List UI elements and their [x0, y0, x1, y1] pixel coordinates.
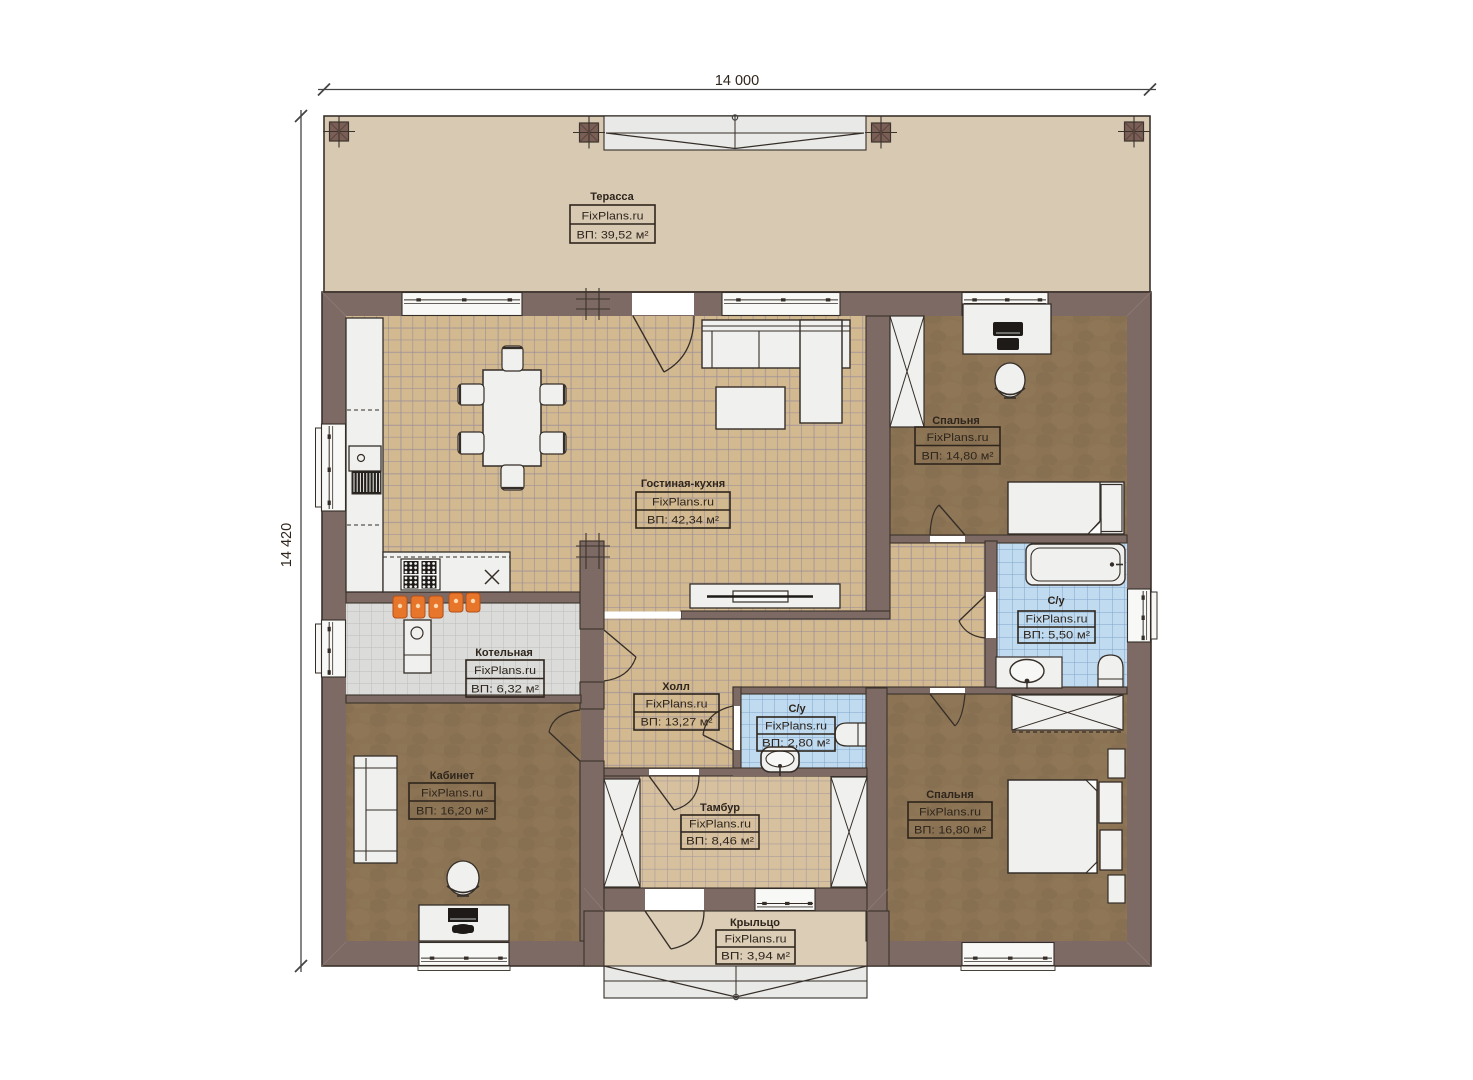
svg-text:ВП: 14,80 м²: ВП: 14,80 м² [922, 451, 994, 463]
svg-text:14 000: 14 000 [715, 73, 759, 89]
svg-text:Гостиная-кухня: Гостиная-кухня [641, 478, 725, 490]
svg-text:14 420: 14 420 [279, 523, 295, 567]
svg-text:ВП: 16,20 м²: ВП: 16,20 м² [416, 806, 488, 818]
svg-text:ВП: 6,32 м²: ВП: 6,32 м² [471, 684, 539, 696]
svg-text:FixPlans.ru: FixPlans.ru [927, 432, 989, 444]
svg-text:FixPlans.ru: FixPlans.ru [725, 934, 787, 946]
svg-text:ВП: 3,94 м²: ВП: 3,94 м² [721, 951, 790, 963]
svg-text:FixPlans.ru: FixPlans.ru [1026, 614, 1088, 626]
svg-text:Холл: Холл [662, 681, 690, 693]
svg-text:Спальня: Спальня [932, 415, 980, 427]
svg-text:С/у: С/у [1047, 595, 1065, 607]
svg-text:FixPlans.ru: FixPlans.ru [582, 211, 644, 223]
svg-text:FixPlans.ru: FixPlans.ru [765, 721, 827, 733]
svg-text:FixPlans.ru: FixPlans.ru [689, 819, 751, 831]
svg-text:FixPlans.ru: FixPlans.ru [919, 807, 981, 819]
svg-text:ВП: 42,34 м²: ВП: 42,34 м² [647, 515, 719, 527]
svg-text:Крыльцо: Крыльцо [730, 917, 780, 929]
svg-text:ВП: 5,50 м²: ВП: 5,50 м² [1023, 630, 1090, 642]
svg-text:FixPlans.ru: FixPlans.ru [646, 699, 708, 711]
svg-text:ВП: 8,46 м²: ВП: 8,46 м² [686, 836, 754, 848]
svg-text:ВП: 2,80 м²: ВП: 2,80 м² [762, 738, 830, 750]
svg-text:FixPlans.ru: FixPlans.ru [421, 788, 483, 800]
svg-text:FixPlans.ru: FixPlans.ru [474, 665, 536, 677]
svg-text:ВП: 16,80 м²: ВП: 16,80 м² [914, 825, 986, 837]
svg-text:Котельная: Котельная [475, 647, 533, 659]
svg-text:С/у: С/у [788, 703, 806, 715]
svg-text:ВП: 39,52 м²: ВП: 39,52 м² [577, 230, 649, 242]
svg-text:FixPlans.ru: FixPlans.ru [652, 497, 714, 509]
svg-text:Тамбур: Тамбур [700, 802, 740, 814]
svg-text:Спальня: Спальня [926, 789, 974, 801]
svg-text:Кабинет: Кабинет [430, 770, 475, 782]
svg-text:Терасса: Терасса [590, 191, 634, 203]
svg-text:ВП: 13,27 м²: ВП: 13,27 м² [641, 717, 713, 729]
